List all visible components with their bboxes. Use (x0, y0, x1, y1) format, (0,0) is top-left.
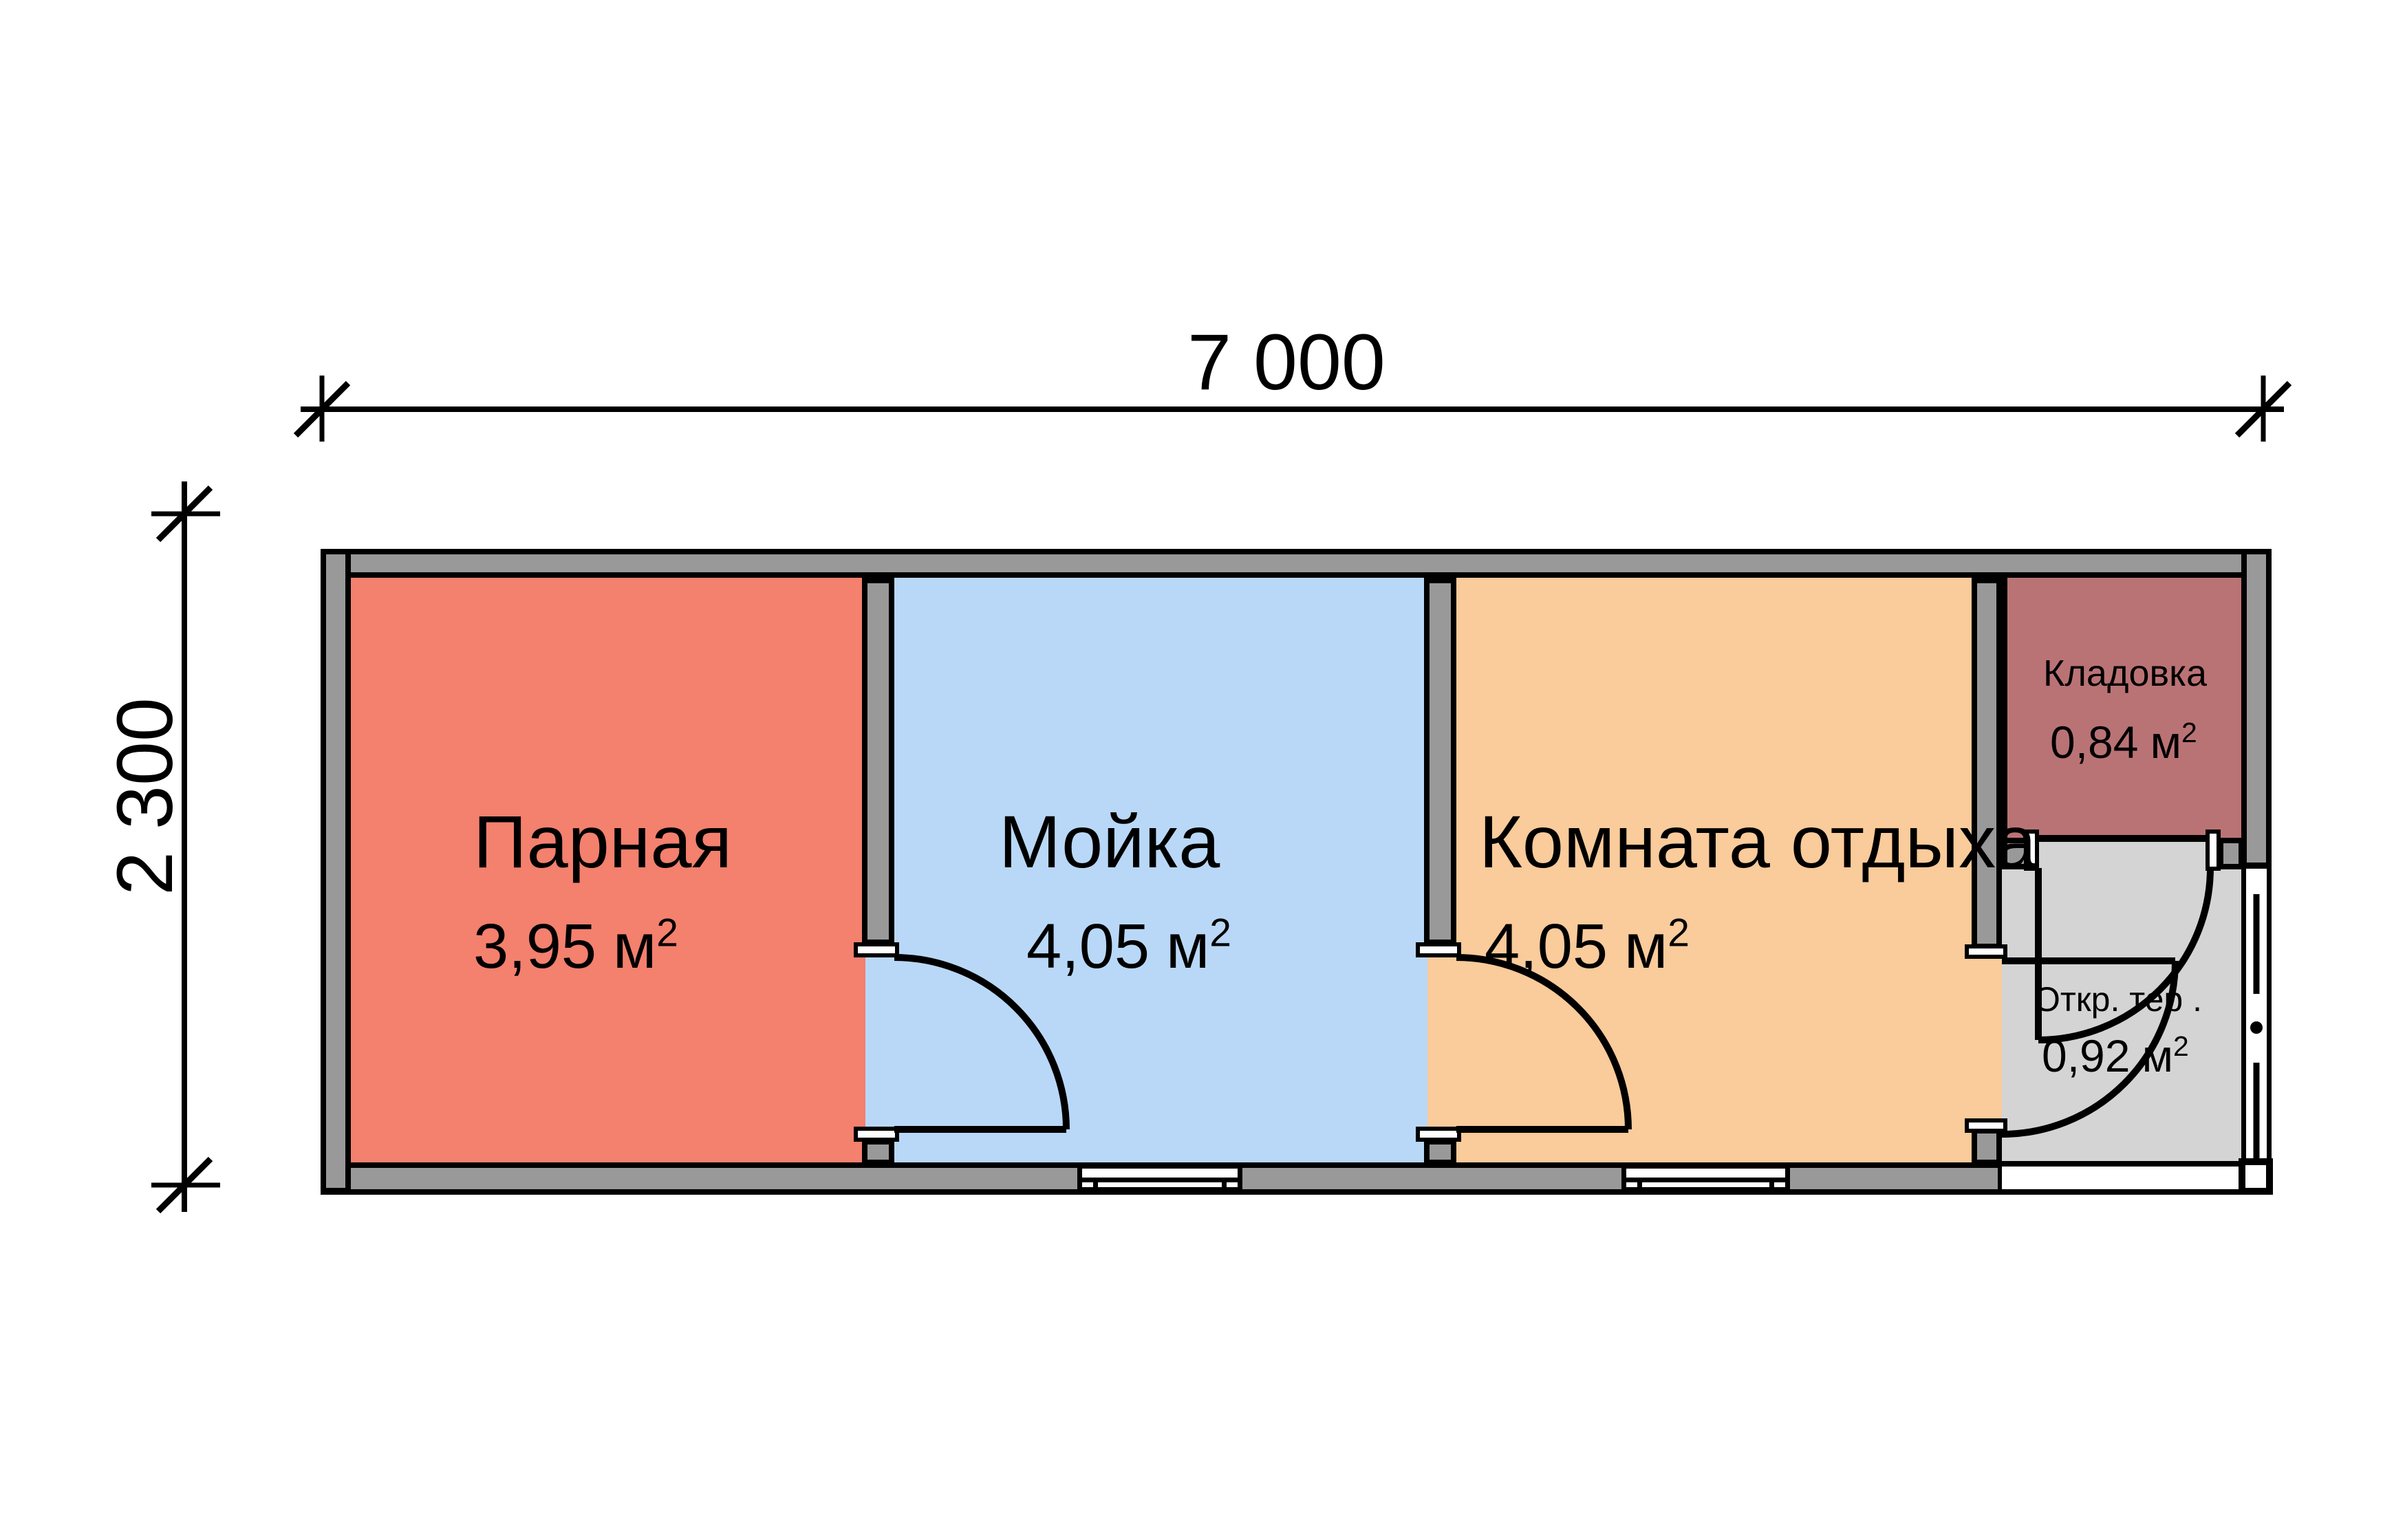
terrace-glazing-dot (2250, 1021, 2263, 1034)
door-swing-parnaya-moyka (894, 957, 1066, 1129)
floor-plan-canvas: Парная 3,95м2 Мойка 4,05м2 Комната отдых… (0, 0, 2394, 1540)
dimension-line-top (296, 376, 2289, 442)
door-swing-moyka-komnata (1456, 957, 1628, 1129)
dimension-line-left (151, 481, 220, 1212)
door-swing-kladovka (2038, 868, 2210, 1040)
door-swing-terrace (2002, 961, 2175, 1134)
linework-overlay (0, 0, 2394, 1540)
